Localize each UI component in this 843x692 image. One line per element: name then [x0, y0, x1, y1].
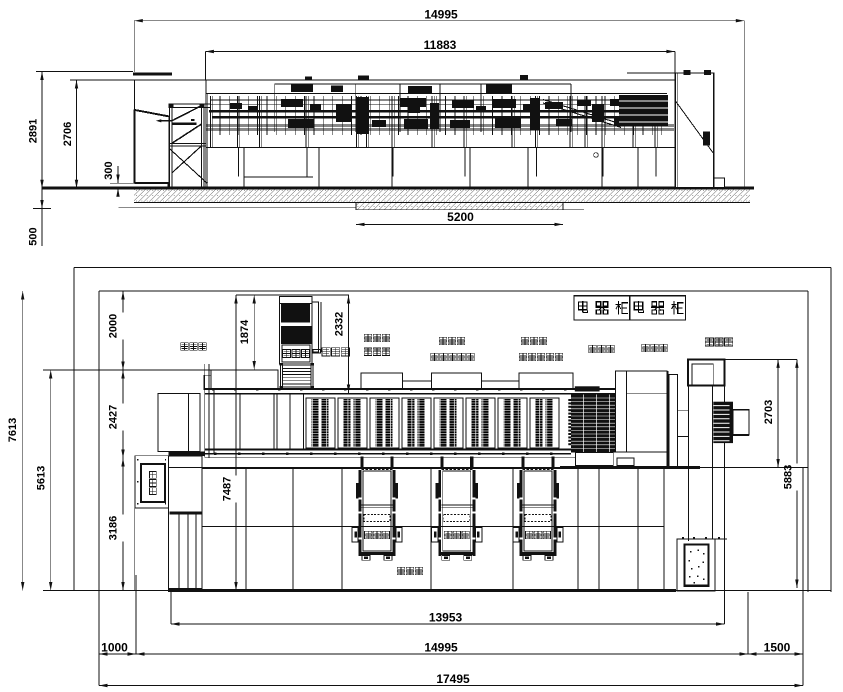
svg-text:5883: 5883: [783, 465, 795, 489]
svg-text:5200: 5200: [447, 210, 474, 224]
svg-text:1000: 1000: [101, 641, 128, 655]
svg-text:5613: 5613: [36, 466, 48, 490]
svg-text:1500: 1500: [764, 641, 791, 655]
svg-text:13953: 13953: [429, 611, 463, 625]
svg-text:2000: 2000: [108, 314, 120, 338]
svg-text:11883: 11883: [424, 38, 457, 52]
svg-text:2427: 2427: [108, 405, 120, 429]
svg-text:14995: 14995: [424, 7, 458, 21]
svg-text:7487: 7487: [222, 477, 234, 501]
svg-text:500: 500: [28, 227, 40, 245]
svg-text:1874: 1874: [239, 319, 251, 344]
svg-text:17495: 17495: [436, 672, 470, 686]
svg-text:2703: 2703: [763, 400, 775, 424]
svg-text:14995: 14995: [424, 641, 458, 655]
svg-text:300: 300: [103, 161, 115, 179]
svg-text:2706: 2706: [62, 122, 74, 146]
svg-text:3186: 3186: [108, 516, 120, 540]
svg-text:2332: 2332: [334, 312, 346, 336]
svg-text:7613: 7613: [7, 418, 19, 442]
svg-text:2891: 2891: [28, 119, 40, 143]
